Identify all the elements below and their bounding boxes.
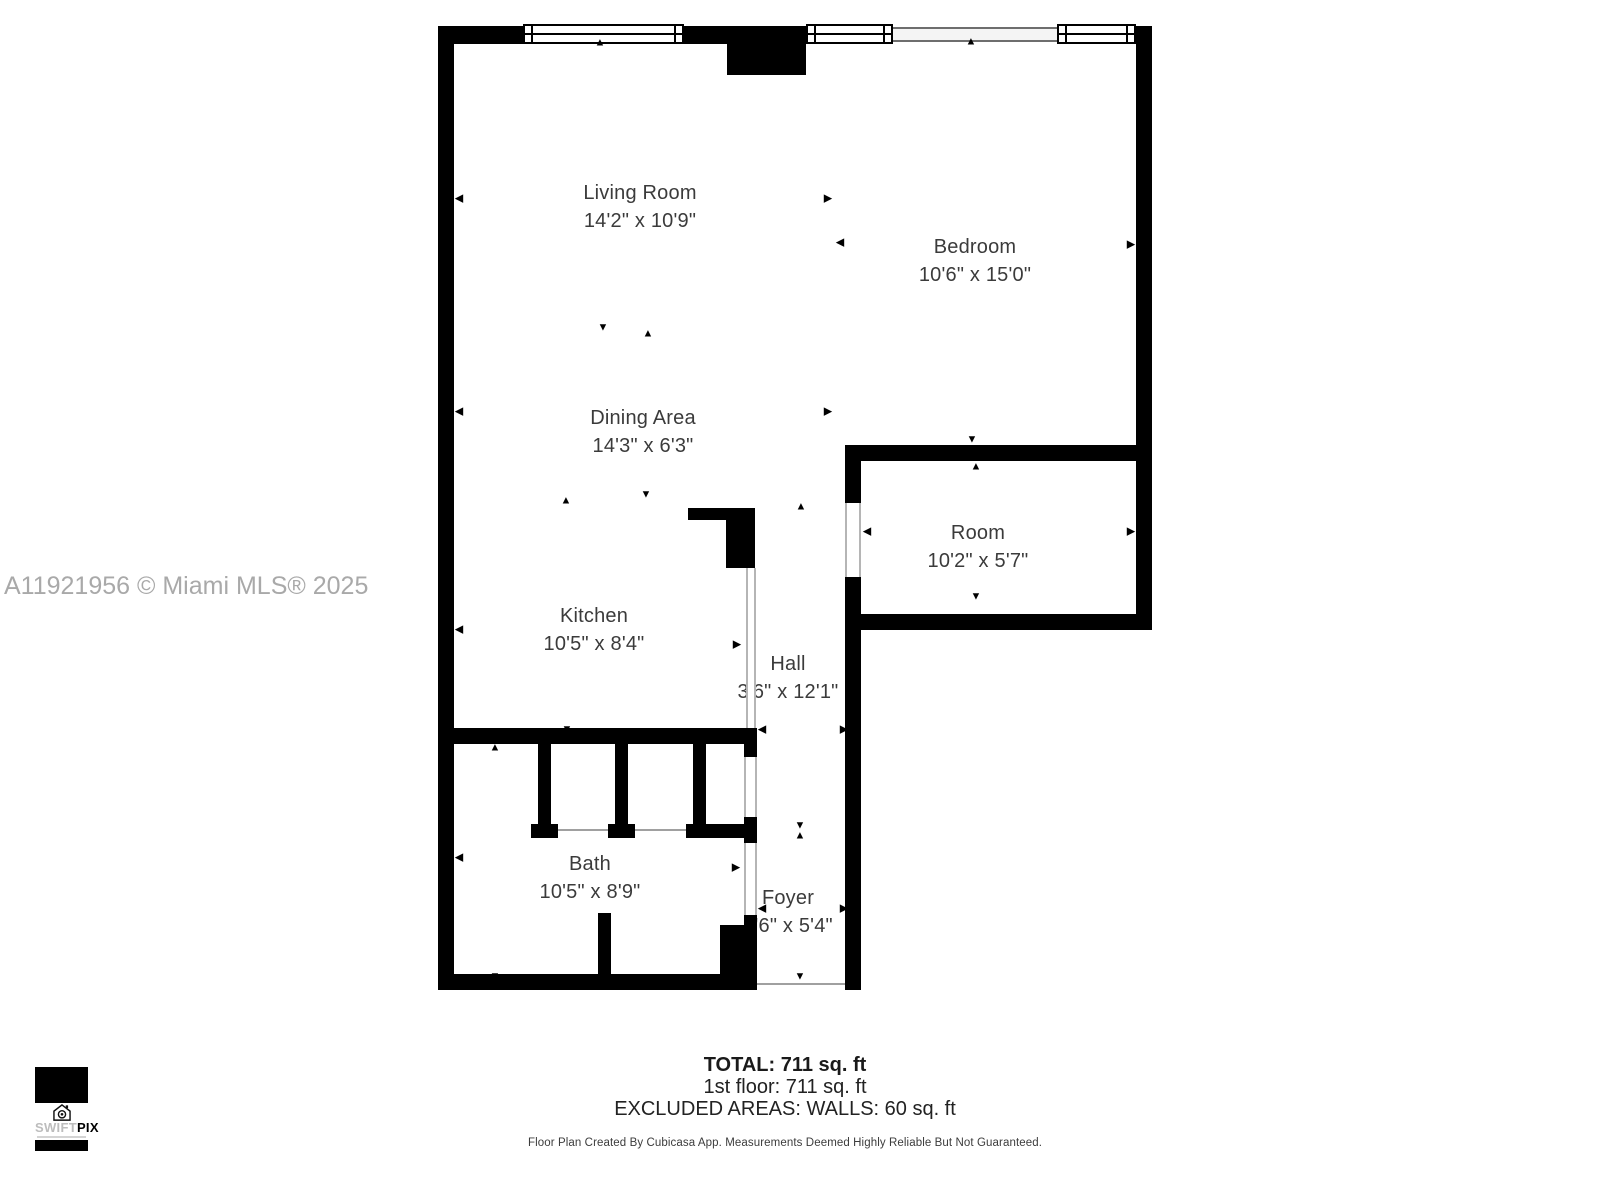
measure-arrow-up: ▲ — [561, 496, 572, 507]
measure-arrow-up: ▲ — [595, 38, 606, 49]
room-label-bedroom: Bedroom10'6" x 15'0" — [919, 233, 1031, 289]
wall-right — [1136, 26, 1152, 630]
wall-top-mid — [684, 26, 727, 44]
floor-plan-page: Living Room14'2" x 10'9"Bedroom10'6" x 1… — [0, 0, 1600, 1200]
measure-arrow-down: ▼ — [490, 972, 501, 983]
wall-hall-right — [845, 577, 861, 990]
swiftpix-logo: SWIFTPIX — [35, 1067, 88, 1151]
measure-arrow-right: ▶ — [1127, 527, 1135, 538]
excluded-area-text: EXCLUDED AREAS: WALLS: 60 sq. ft — [485, 1098, 1085, 1120]
measure-arrow-up: ▲ — [643, 329, 654, 340]
measure-arrow-right: ▶ — [732, 863, 740, 874]
measure-arrow-right: ▶ — [733, 640, 741, 651]
bath-door-opening — [744, 843, 757, 915]
measure-arrow-up: ▲ — [795, 831, 806, 842]
disclaimer-text: Floor Plan Created By Cubicasa App. Meas… — [485, 1137, 1085, 1149]
closet-threshold-1 — [558, 829, 608, 831]
measure-arrow-right: ▶ — [824, 407, 832, 418]
measure-arrow-down: ▼ — [971, 592, 982, 603]
wall-closet-bottom-2 — [608, 824, 635, 838]
room-door-opening — [845, 503, 861, 577]
closet-threshold-2 — [635, 829, 686, 831]
logo-brand-light: SWIFT — [35, 1120, 77, 1135]
window-bedroom-1 — [806, 24, 893, 44]
measure-arrow-right: ▶ — [840, 904, 848, 915]
measure-arrow-down: ▼ — [598, 323, 609, 334]
hall-closet-door-opening — [744, 757, 757, 817]
measure-arrow-down: ▼ — [562, 725, 573, 736]
measure-arrow-up: ▲ — [966, 37, 977, 48]
measure-arrow-right: ▶ — [824, 194, 832, 205]
measure-arrow-down: ▼ — [641, 490, 652, 501]
measure-arrow-up: ▲ — [490, 743, 501, 754]
wall-closet-divider-3 — [693, 742, 706, 830]
wall-closet-divider-2 — [615, 742, 628, 830]
wall-foyer-block — [720, 925, 757, 990]
logo-brand-text: SWIFTPIX — [35, 1121, 88, 1134]
measure-arrow-left: ◀ — [863, 527, 871, 538]
logo-block-bottom — [35, 1140, 88, 1151]
room-label-bath: Bath10'5" x 8'9" — [540, 850, 641, 906]
room-label-dining-area: Dining Area14'3" x 6'3" — [590, 404, 696, 460]
total-area-text: TOTAL: 711 sq. ft — [485, 1054, 1085, 1076]
measure-arrow-left: ◀ — [758, 725, 766, 736]
measure-arrow-left: ◀ — [758, 904, 766, 915]
room-label-kitchen: Kitchen10'5" x 8'4" — [544, 602, 645, 658]
first-floor-area-text: 1st floor: 711 sq. ft — [485, 1076, 1085, 1098]
wall-hall-left-c — [744, 915, 757, 925]
room-label-living-room: Living Room14'2" x 10'9" — [583, 179, 696, 235]
room-label-room: Room10'2" x 5'7" — [928, 519, 1029, 575]
measure-arrow-right: ▶ — [1127, 240, 1135, 251]
mls-watermark: A11921956 © Miami MLS® 2025 — [4, 572, 368, 601]
wall-left — [438, 26, 454, 990]
wall-closet-bottom-3 — [686, 824, 744, 838]
wall-kitchen-l-horizontal — [688, 508, 755, 520]
wall-bath-bottom — [438, 974, 720, 990]
logo-brand-bold: PIX — [77, 1120, 99, 1135]
foyer-entry-line — [757, 983, 845, 985]
measure-arrow-down: ▼ — [967, 435, 978, 446]
wall-closet-bottom-1 — [531, 824, 558, 838]
measure-arrow-down: ▼ — [795, 972, 806, 983]
wall-room-top — [845, 445, 1152, 461]
wall-room-left-upper — [845, 445, 861, 503]
logo-tagline — [37, 1136, 86, 1138]
measure-arrow-left: ◀ — [455, 853, 463, 864]
measure-arrow-up: ▲ — [796, 502, 807, 513]
window-bedroom-2 — [1057, 24, 1136, 44]
house-camera-icon — [35, 1104, 88, 1121]
wall-hall-left-b — [744, 817, 757, 843]
logo-block-top — [35, 1067, 88, 1103]
wall-kitchen-l-vertical — [726, 520, 755, 568]
area-summary: TOTAL: 711 sq. ft 1st floor: 711 sq. ft … — [485, 1054, 1085, 1149]
measure-arrow-up: ▲ — [971, 462, 982, 473]
wall-chimney-block — [727, 26, 806, 75]
measure-arrow-left: ◀ — [455, 625, 463, 636]
kitchen-hall-opening — [746, 568, 756, 728]
wall-room-bottom — [845, 614, 1152, 630]
measure-arrow-left: ◀ — [836, 238, 844, 249]
measure-arrow-right: ▶ — [840, 725, 848, 736]
wall-closet-divider-1 — [538, 742, 551, 830]
measure-arrow-left: ◀ — [455, 194, 463, 205]
wall-hall-left-a — [744, 744, 757, 757]
measure-arrow-left: ◀ — [455, 407, 463, 418]
